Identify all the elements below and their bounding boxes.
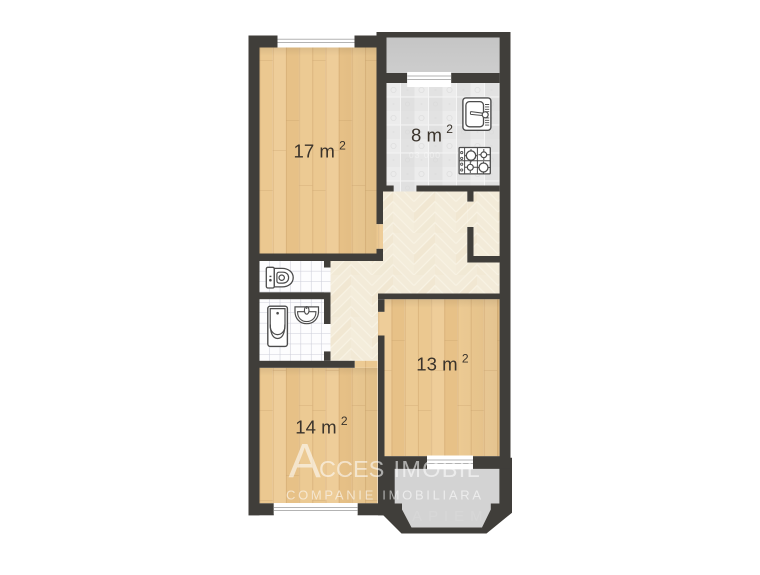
svg-text:2: 2: [462, 351, 469, 365]
svg-text:03 000: 03 000: [409, 150, 441, 160]
svg-text:IMOBIL: IMOBIL: [394, 456, 481, 482]
svg-text:2: 2: [446, 122, 453, 136]
svg-text:APIEM: APIEM: [412, 508, 489, 525]
svg-text:13 m: 13 m: [416, 354, 457, 375]
svg-text:8 m: 8 m: [411, 124, 442, 145]
svg-text:COMPANIE IMOBILIARA: COMPANIE IMOBILIARA: [286, 487, 484, 502]
svg-text:2: 2: [339, 138, 346, 152]
svg-text:CCES: CCES: [319, 456, 384, 482]
svg-text:2: 2: [341, 414, 348, 428]
svg-text:A: A: [289, 434, 322, 488]
svg-text:17 m: 17 m: [294, 141, 335, 162]
